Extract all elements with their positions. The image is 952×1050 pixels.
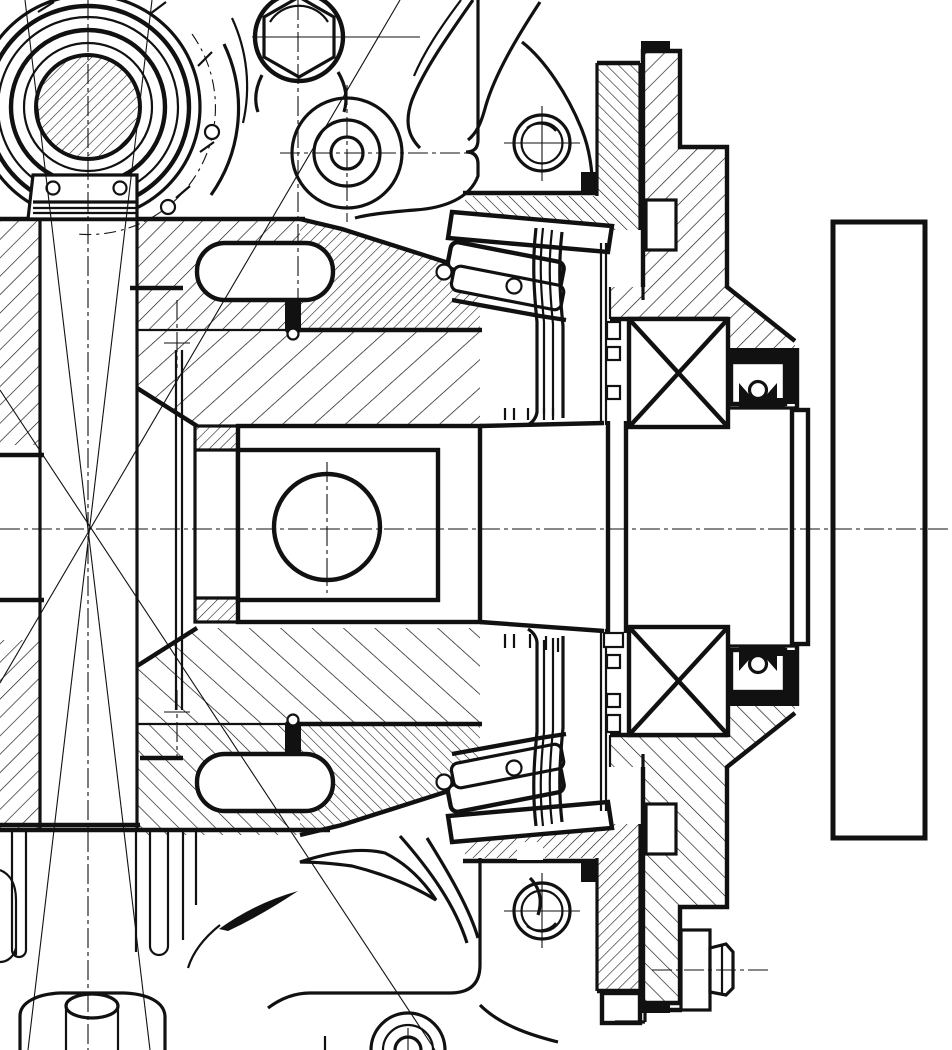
engineering-drawing-page: [0, 0, 952, 1050]
lip-seal: [729, 348, 798, 410]
carrier-flange-upper: [597, 63, 640, 230]
output-stub-shaft: [792, 410, 808, 644]
cover-bolt-hole: [161, 200, 175, 214]
cover-bolt-hole: [205, 125, 219, 139]
sleeve-end: [195, 426, 238, 622]
seal-dot-upper: [581, 172, 597, 191]
cover-bracket: [28, 175, 137, 219]
gear-mass-upper: [137, 330, 480, 426]
ball-bearing: [629, 319, 728, 427]
cross-section-drawing: [0, 0, 952, 1050]
oil-slot-upper: [197, 243, 333, 300]
drain-boss-cylinder: [20, 993, 165, 1050]
companion-flange: [833, 222, 925, 838]
shim-box: [602, 993, 640, 1023]
spacer-window: [646, 200, 676, 250]
